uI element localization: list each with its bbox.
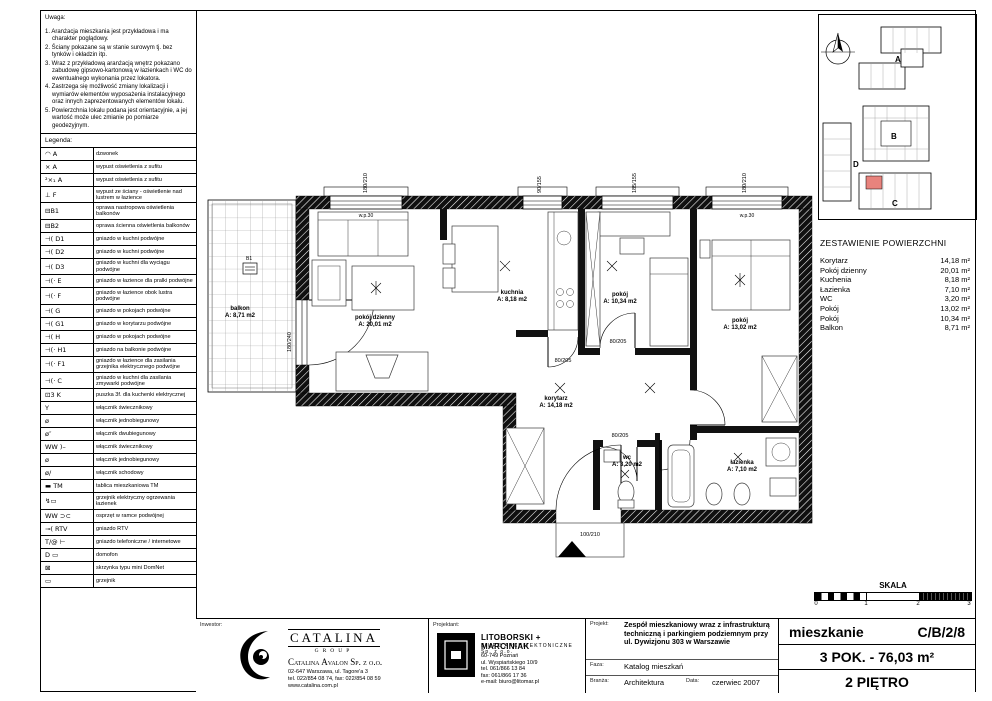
designer-section: Projektant: LITOBORSKI + MARCINIAK BIURO… [428,619,585,693]
room-label-bedroom-1: pokójA: 10,34 m2 [603,292,636,306]
date-label: Data: [682,676,712,693]
svg-text:80/205: 80/205 [555,358,572,364]
legend-description: gniazdo w kuchni podwójne [94,233,196,245]
legend-description: włącznik świecznikowy [94,402,196,414]
area-room-name: WC [820,294,833,304]
area-room-value: 3,20 m² [945,294,970,304]
area-row: Balkon 8,71 m² [820,323,970,333]
apartment-floor: 2 PIĘTRO [845,674,909,690]
balcony-area: B1 [208,200,296,392]
room-label-bedroom-2: pokójA: 13,02 m2 [723,318,756,332]
legend-table: ◠ A dzwonek × A wypust oświetlenia z suf… [41,148,196,588]
legend-row: Y włącznik świecznikowy [41,402,196,415]
room-label-hall: korytarzA: 14,18 m2 [539,396,572,410]
catalina-logo-icon [234,627,282,683]
room-label-living: pokój dziennyA: 20,01 m2 [355,315,395,329]
legend-title: Legenda: [41,133,196,148]
legend-symbol-icon: ⊣( G1 [41,318,94,330]
legend-description: grzejnik [94,575,196,587]
legend-symbol-icon: ⊡3 K [41,389,94,401]
legend-symbol-icon: ◠ A [41,148,94,160]
designer-address-line: tel. 061/866 13 84 [481,666,539,673]
legend-description: gniazdo w łazience dla zasilania grzejni… [94,357,196,372]
legend-description: wypust oświetlenia z sufitu [94,161,196,173]
entrance-marker-icon [558,541,586,557]
legend-row: ⊣(⋅ H1 gniazdo na balkonie podwójne [41,344,196,357]
area-row: Kuchenia 8,18 m² [820,275,970,285]
apartment-label: mieszkanie [789,624,864,640]
designer-address-line: 60-749 Poznań [481,653,539,660]
scale-bar: SKALA 0 1 2 3 [814,581,972,609]
note-item: 1. Aranżacja mieszkania jest przykładowa… [45,29,192,44]
phase-value: Katalog mieszkań [624,660,683,675]
investor-brand-sub: GROUP [288,648,380,654]
legend-description: gniazdo w korytarzu podwójne [94,318,196,330]
legend-row: ⊸( RTV gniazdo RTV [41,523,196,536]
designer-address: 60-749 Poznańul. Wyspiańskiego 10/9tel. … [481,653,539,686]
legend-symbol-icon: WW ⊃⊂ [41,510,94,522]
legend-symbol-icon: Y [41,402,94,414]
legend-symbol-icon: ⊟B2 [41,220,94,232]
legend-row: ø włącznik jednobiegunowy [41,415,196,428]
legend-row: T/@ ⊢ gniazdo telefoniczne / internetowe [41,536,196,549]
legend-description: dzwonek [94,148,196,160]
svg-text:w.p.30: w.p.30 [740,213,755,219]
svg-text:180/210: 180/210 [742,173,748,193]
designer-address-line: e-mail: biuro@litomar.pl [481,679,539,686]
legend-description: włącznik świecznikowy [94,441,196,453]
legend-description: gniazdo w kuchni dla wyciągu podwójne [94,259,196,274]
legend-description: skrzynka typu mini DomNet [94,562,196,574]
legend-row: ⊣(⋅ C gniazdo w kuchni dla zasilania zmy… [41,373,196,389]
svg-text:80/205: 80/205 [610,339,627,345]
note-item: 2. Ściany pokazane są w stanie surowym t… [45,45,192,60]
svg-text:180/240: 180/240 [287,332,293,352]
legend-description: gniazdo w kuchni podwójne [94,246,196,258]
area-row: Pokój dzienny 20,01 m² [820,266,970,276]
legend-row: ⊣(⋅ F1 gniazdo w łazience dla zasilania … [41,357,196,373]
area-room-name: Łazienka [820,285,850,295]
scale-ticks: 0 1 2 3 [814,601,972,609]
scale-tick: 0 [814,601,817,607]
area-room-value: 13,02 m² [940,304,970,314]
room-label-bathroom: łazienkaA: 7,10 m2 [727,460,757,474]
apartment-code: C/B/2/8 [918,624,965,640]
legend-row: ⊟B2 oprawa ścienna oświetlenia balkonów [41,220,196,233]
area-room-value: 7,10 m² [945,285,970,295]
drawing-sheet: B1 [0,0,992,701]
legend-symbol-icon: ⊣( D2 [41,246,94,258]
room-label-wc: wcA: 3,20 m2 [612,455,642,469]
legend-description: wypust ze ściany - oświetlenie nad lustr… [94,187,196,202]
investor-brand: CATALINA [288,629,380,647]
branch-label: Branża: [586,676,624,693]
note-item: 3. Wraz z przykładową aranżacją wnętrz p… [45,61,192,84]
project-label: Projekt: [586,619,624,659]
building-d [823,123,851,201]
legend-description: puszka 3f. dla kuchenki elektrycznej [94,389,196,401]
legend-row: WW ⊃⊂ osprzęt w ramce podwójnej [41,510,196,523]
svg-text:180/210: 180/210 [363,173,369,193]
legend-description: osprzęt w ramce podwójnej [94,510,196,522]
legend-row: ⊡3 K puszka 3f. dla kuchenki elektryczne… [41,389,196,402]
scale-bar-graphic [814,592,972,601]
legend-symbol-icon: ⊠ [41,562,94,574]
building-c-label: C [892,199,898,208]
legend-row: ⊣( G gniazdo w pokojach podwójne [41,305,196,318]
area-row: Korytarz 14,18 m² [820,256,970,266]
legend-description: gniazdo w łazience dla pralki podwójne [94,275,196,287]
site-plan: A B D C [818,14,977,220]
scale-tick: 2 [916,601,919,607]
litomar-logo-icon [437,633,475,677]
room-label-kitchen: kuchniaA: 8,18 m2 [497,290,527,304]
designer-label: Projektant: [433,622,459,628]
svg-text:B1: B1 [246,256,252,262]
legend-description: oprawa ścienna oświetlenia balkonów [94,220,196,232]
investor-address-line: 02-647 Warszawa, ul. Tagore'a 3 [288,669,381,676]
legend-row: ø włącznik jednobiegunowy [41,454,196,467]
legend-symbol-icon: ↯▭ [41,493,94,508]
note-item: 4. Zastrzega się możliwość zmiany lokali… [45,84,192,107]
legend-symbol-icon: ⊣(⋅ F [41,288,94,303]
legend-symbol-icon: ⊣(⋅ H1 [41,344,94,356]
legend-description: gniazdo RTV [94,523,196,535]
legend-symbol-icon: ø [41,454,94,466]
svg-text:100/210: 100/210 [580,532,600,538]
legend-description: domofon [94,549,196,561]
legend-description: gniazdo w łazience obok lustra podwójne [94,288,196,303]
legend-symbol-icon: ⊣(⋅ C [41,373,94,388]
legend-row: ◠ A dzwonek [41,148,196,161]
legend-symbol-icon: ø/ [41,467,94,479]
area-room-value: 8,71 m² [945,323,970,333]
area-row: Pokój 13,02 m² [820,304,970,314]
legend-row: WW )– włącznik świecznikowy [41,441,196,454]
area-room-name: Kuchenia [820,275,851,285]
investor-address-line: tel. 022/854 08 74, fax: 022/854 08 59 [288,676,381,683]
legend-row: ø/ włącznik schodowy [41,467,196,480]
legend-symbol-icon: WW )– [41,441,94,453]
scale-tick: 3 [967,601,970,607]
legend-row: ²×₁ A wypust oświetlenia z sufitu [41,174,196,187]
legend-row: D ▭ domofon [41,549,196,562]
legend-row: ⊣( G1 gniazdo w korytarzu podwójne [41,318,196,331]
legend-description: wypust oświetlenia z sufitu [94,174,196,186]
legend-description: włącznik jednobiegunowy [94,454,196,466]
area-room-name: Pokój [820,314,839,324]
legend-description: gniazdo na balkonie podwójne [94,344,196,356]
svg-text:185/155: 185/155 [632,173,638,193]
area-room-value: 8,18 m² [945,275,970,285]
title-block: Inwestor: CATALINA GROUP Catalina Avalon… [196,618,975,693]
legend-symbol-icon: ▭ [41,575,94,587]
note-item: 5. Powierzchnia lokalu podana jest orien… [45,108,192,131]
legend-symbol-icon: ⊣( D3 [41,259,94,274]
legend-symbol-icon: ⊣(⋅ F1 [41,357,94,372]
legend-symbol-icon: ⊟B1 [41,203,94,218]
building-b-label: B [891,132,897,141]
legend-description: gniazdo w kuchni dla zasilania zmywarki … [94,373,196,388]
investor-section: Inwestor: CATALINA GROUP Catalina Avalon… [196,619,428,693]
area-room-value: 14,18 m² [940,256,970,266]
legend-row: ⊣( D3 gniazdo w kuchni dla wyciągu podwó… [41,259,196,275]
north-arrow-icon [821,33,855,64]
apartment-section: mieszkanie C/B/2/8 3 POK. - 76,03 m² 2 P… [778,619,975,693]
area-room-value: 20,01 m² [940,266,970,276]
legend-symbol-icon: ⊣(⋅ E [41,275,94,287]
phase-label: Faza: [586,660,624,675]
legend-row: ⊣(⋅ F gniazdo w łazience obok lustra pod… [41,288,196,304]
legend-symbol-icon: × A [41,161,94,173]
legend-panel: Uwaga: 1. Aranżacja mieszkania jest przy… [40,10,197,692]
legend-symbol-icon: T/@ ⊢ [41,536,94,548]
legend-symbol-icon: ⊥ F [41,187,94,202]
legend-symbol-icon: D ▭ [41,549,94,561]
building-a-label: A [895,55,901,64]
date-value: czerwiec 2007 [712,676,760,693]
legend-row: ⊣(⋅ E gniazdo w łazience dla pralki podw… [41,275,196,288]
legend-description: gniazdo w pokojach podwójne [94,331,196,343]
svg-text:w.p.30: w.p.30 [359,213,374,219]
legend-row: ⊠ skrzynka typu mini DomNet [41,562,196,575]
area-room-name: Pokój dzienny [820,266,867,276]
area-room-name: Balkon [820,323,843,333]
legend-description: włącznik schodowy [94,467,196,479]
legend-symbol-icon: ▬ TM [41,480,94,492]
building-d-label: D [853,160,859,169]
legend-symbol-icon: ⊣( D1 [41,233,94,245]
legend-description: grzejnik elektryczny ogrzewania łazienek [94,493,196,508]
svg-text:80/205: 80/205 [612,433,629,439]
legend-symbol-icon: ²×₁ A [41,174,94,186]
investor-company: Catalina Avalon Sp. z o.o. [288,657,382,667]
legend-row: ⊥ F wypust ze ściany - oświetlenie nad l… [41,187,196,203]
legend-symbol-icon: ⊣( G [41,305,94,317]
legend-row: ⊟B1 oprawa nastropowa oświetlenia balkon… [41,203,196,219]
designer-address-line: ul. Wyspiańskiego 10/9 [481,660,539,667]
scale-tick: 1 [864,601,867,607]
area-room-name: Korytarz [820,256,848,266]
project-description: Zespół mieszkaniowy wraz z infrastruktur… [624,619,774,659]
highlighted-unit [866,176,882,189]
legend-description: tablica mieszkaniowa TM [94,480,196,492]
legend-symbol-icon: ø [41,415,94,427]
legend-row: ø″ włącznik dwubiegunowy [41,428,196,441]
legend-description: włącznik jednobiegunowy [94,415,196,427]
legend-row: ▭ grzejnik [41,575,196,588]
legend-symbol-icon: ⊸( RTV [41,523,94,535]
investor-address: 02-647 Warszawa, ul. Tagore'a 3tel. 022/… [288,669,381,689]
scale-title: SKALA [814,581,972,590]
project-section: Projekt: Zespół mieszkaniowy wraz z infr… [585,619,778,693]
branch-value: Architektura [624,676,682,693]
designer-address-line: fax: 061/866 17 36 [481,673,539,680]
area-row: Pokój 10,34 m² [820,314,970,324]
entrance [556,523,624,557]
investor-label: Inwestor: [200,622,222,628]
legend-description: włącznik dwubiegunowy [94,428,196,440]
investor-address-line: www.catalina.com.pl [288,683,381,690]
room-label-balcony: balkonA: 8,71 m2 [225,306,255,320]
svg-text:90/155: 90/155 [537,176,543,193]
legend-description: gniazdo telefoniczne / internetowe [94,536,196,548]
legend-row: ⊣( H gniazdo w pokojach podwójne [41,331,196,344]
legend-description: oprawa nastropowa oświetlenia balkonów [94,203,196,218]
legend-row: ⊣( D1 gniazdo w kuchni podwójne [41,233,196,246]
area-room-value: 10,34 m² [940,314,970,324]
legend-row: ▬ TM tablica mieszkaniowa TM [41,480,196,493]
apartment-size: 3 POK. - 76,03 m² [820,649,934,665]
area-row: WC 3,20 m² [820,294,970,304]
area-summary: ZESTAWIENIE POWIERZCHNI Korytarz 14,18 m… [820,238,970,333]
area-row: Łazienka 7,10 m² [820,285,970,295]
legend-row: × A wypust oświetlenia z sufitu [41,161,196,174]
notes-block: Uwaga: 1. Aranżacja mieszkania jest przy… [41,11,196,133]
area-room-name: Pokój [820,304,839,314]
legend-symbol-icon: ⊣( H [41,331,94,343]
legend-description: gniazdo w pokojach podwójne [94,305,196,317]
legend-row: ⊣( D2 gniazdo w kuchni podwójne [41,246,196,259]
area-summary-title: ZESTAWIENIE POWIERZCHNI [820,238,970,248]
legend-symbol-icon: ø″ [41,428,94,440]
legend-row: ↯▭ grzejnik elektryczny ogrzewania łazie… [41,493,196,509]
notes-title: Uwaga: [45,15,192,23]
